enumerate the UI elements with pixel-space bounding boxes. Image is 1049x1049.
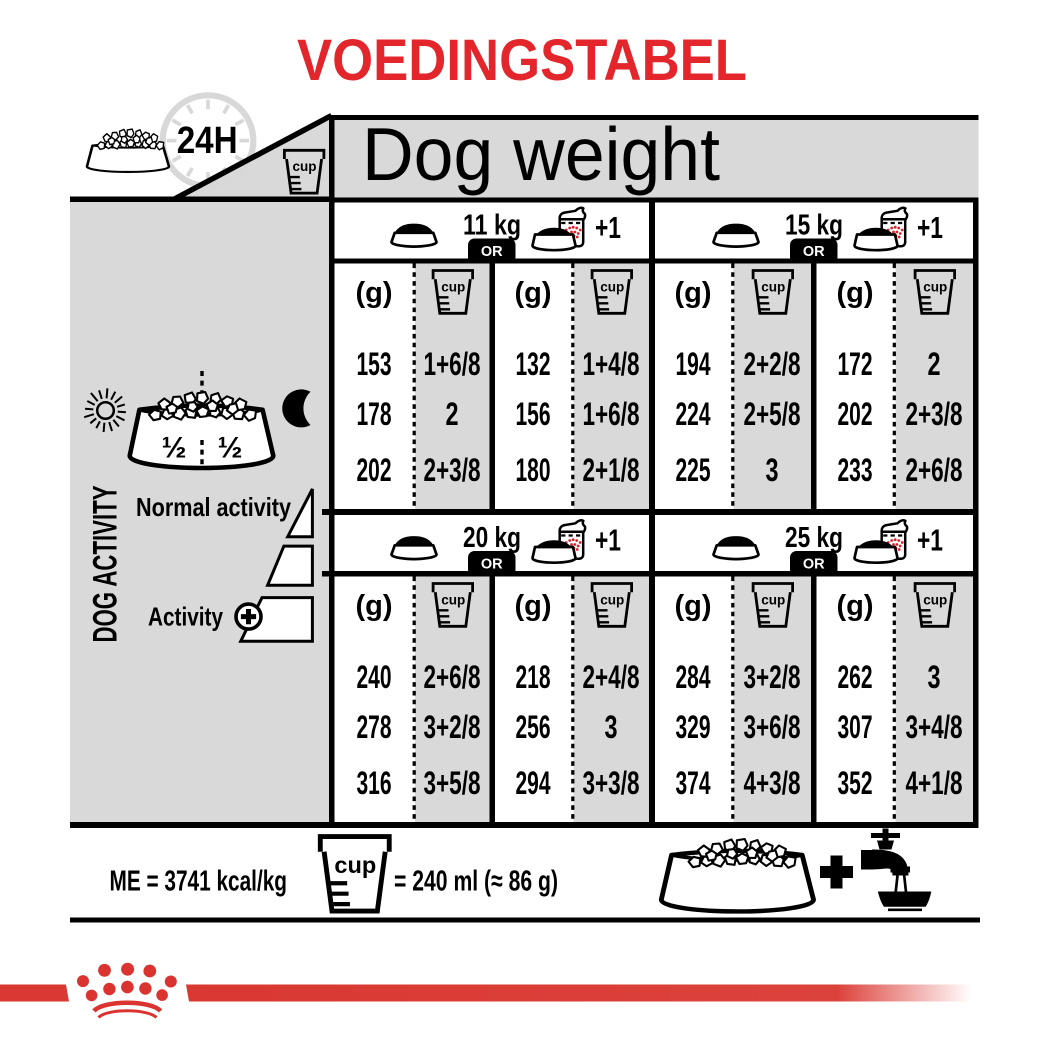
- svg-text:25 kg: 25 kg: [785, 522, 843, 554]
- svg-text:3+2/8: 3+2/8: [744, 659, 801, 695]
- svg-text:153: 153: [357, 346, 392, 382]
- svg-text:2: 2: [446, 396, 459, 432]
- svg-text:3+6/8: 3+6/8: [744, 709, 801, 745]
- svg-text:= 240 ml (≈ 86 g): = 240 ml (≈ 86 g): [394, 865, 558, 897]
- svg-text:3+3/8: 3+3/8: [583, 765, 640, 801]
- svg-text:278: 278: [357, 709, 392, 745]
- svg-text:329: 329: [676, 709, 711, 745]
- svg-text:218: 218: [516, 659, 551, 695]
- svg-text:262: 262: [838, 659, 873, 695]
- svg-text:352: 352: [838, 765, 873, 801]
- svg-text:1+6/8: 1+6/8: [583, 396, 640, 432]
- svg-text:OR: OR: [803, 557, 825, 573]
- svg-text:15 kg: 15 kg: [785, 210, 843, 242]
- svg-text:3: 3: [928, 659, 941, 695]
- svg-text:2+3/8: 2+3/8: [424, 452, 481, 488]
- svg-text:24H: 24H: [177, 120, 238, 162]
- svg-text:½: ½: [217, 432, 242, 465]
- svg-text:3+5/8: 3+5/8: [424, 765, 481, 801]
- svg-text:11 kg: 11 kg: [463, 210, 521, 242]
- svg-text:4+1/8: 4+1/8: [906, 765, 963, 801]
- svg-text:2+3/8: 2+3/8: [906, 396, 963, 432]
- svg-text:374: 374: [676, 765, 711, 801]
- svg-text:VOEDINGSTABEL: VOEDINGSTABEL: [297, 28, 747, 93]
- svg-text:OR: OR: [481, 557, 503, 573]
- svg-text:132: 132: [516, 346, 551, 382]
- svg-text:(g): (g): [355, 590, 392, 622]
- svg-text:(g): (g): [836, 590, 873, 622]
- svg-text:202: 202: [838, 396, 873, 432]
- svg-text:2+5/8: 2+5/8: [744, 396, 801, 432]
- svg-text:(g): (g): [514, 277, 551, 309]
- svg-text:3: 3: [766, 452, 779, 488]
- svg-text:(g): (g): [674, 277, 711, 309]
- svg-text:225: 225: [676, 452, 711, 488]
- svg-text:2+6/8: 2+6/8: [424, 659, 481, 695]
- svg-text:240: 240: [357, 659, 392, 695]
- svg-text:Dog weight: Dog weight: [362, 112, 720, 196]
- svg-text:224: 224: [676, 396, 711, 432]
- svg-text:294: 294: [516, 765, 551, 801]
- svg-text:DOG ACTIVITY: DOG ACTIVITY: [86, 485, 124, 642]
- svg-text:3+2/8: 3+2/8: [424, 709, 481, 745]
- svg-text:284: 284: [676, 659, 711, 695]
- svg-text:Normal activity: Normal activity: [136, 492, 291, 522]
- svg-text:(g): (g): [355, 277, 392, 309]
- svg-text:316: 316: [357, 765, 392, 801]
- svg-text:2+2/8: 2+2/8: [744, 346, 801, 382]
- svg-text:(g): (g): [674, 590, 711, 622]
- svg-text:178: 178: [357, 396, 392, 432]
- svg-text:OR: OR: [803, 244, 825, 260]
- svg-text:1+6/8: 1+6/8: [424, 346, 481, 382]
- svg-text:2+6/8: 2+6/8: [906, 452, 963, 488]
- svg-text:3: 3: [605, 709, 618, 745]
- svg-text:+1: +1: [917, 523, 943, 558]
- svg-text:194: 194: [676, 346, 711, 382]
- svg-text:1+4/8: 1+4/8: [583, 346, 640, 382]
- svg-text:20 kg: 20 kg: [463, 522, 521, 554]
- svg-text:307: 307: [838, 709, 873, 745]
- svg-text:2+4/8: 2+4/8: [583, 659, 640, 695]
- svg-text:(g): (g): [836, 277, 873, 309]
- svg-text:180: 180: [516, 452, 551, 488]
- svg-text:2+1/8: 2+1/8: [583, 452, 640, 488]
- svg-text:ME = 3741 kcal/kg: ME = 3741 kcal/kg: [110, 865, 288, 897]
- svg-text:4+3/8: 4+3/8: [744, 765, 801, 801]
- svg-text:+1: +1: [917, 210, 943, 245]
- svg-text:(g): (g): [514, 590, 551, 622]
- svg-text:2: 2: [928, 346, 941, 382]
- svg-text:156: 156: [516, 396, 551, 432]
- svg-text:OR: OR: [481, 244, 503, 260]
- svg-text:+1: +1: [595, 523, 621, 558]
- svg-text:+1: +1: [595, 210, 621, 245]
- svg-text:202: 202: [357, 452, 392, 488]
- svg-text:½: ½: [161, 432, 186, 465]
- svg-text:172: 172: [838, 346, 873, 382]
- svg-text:256: 256: [516, 709, 551, 745]
- svg-text:233: 233: [838, 452, 873, 488]
- svg-text:3+4/8: 3+4/8: [906, 709, 963, 745]
- svg-text:Activity: Activity: [148, 602, 223, 632]
